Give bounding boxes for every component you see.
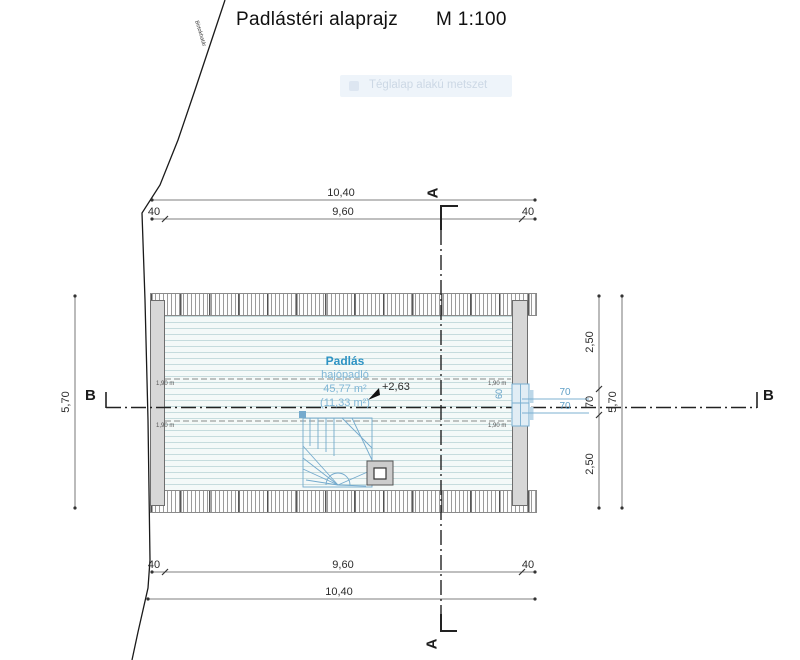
headroom-label-bottom-right: 1,90 m: [488, 423, 506, 429]
room-level: +2,63: [382, 381, 426, 393]
section-tool-label: Téglalap alakú metszet: [369, 79, 487, 91]
dim-bottom-inner: 9,60: [318, 559, 368, 571]
room-area: 45,77 m²: [300, 383, 390, 395]
section-marker-b-right: B: [763, 388, 774, 404]
headroom-label-top-right: 1,90 m: [488, 381, 506, 387]
dim-left-overall: 5,70: [60, 382, 72, 422]
dim-bottom-overall: 10,40: [316, 586, 362, 598]
dim-top-overall: 10,40: [318, 187, 364, 199]
dim-top-left-offset: 40: [144, 206, 164, 218]
dim-bottom-right-offset: 40: [518, 559, 538, 571]
dim-right-upper: 2,50: [584, 322, 596, 362]
dimension-ticks: [162, 216, 602, 575]
dim-top-inner: 9,60: [318, 206, 368, 218]
dim-right-mid: 70: [584, 382, 596, 422]
section-marker-a-bottom: A: [424, 639, 440, 650]
drawing-scale: M 1:100: [436, 9, 507, 31]
floorplan-canvas: Padlástéri alaprajz M 1:100 Birtokhatár …: [0, 0, 800, 660]
room-area-secondary: (11,33 m²): [300, 397, 390, 409]
dim-window-width-bottom: 70: [550, 401, 580, 413]
dim-right-overall: 5,70: [607, 382, 619, 422]
dim-window-width-top: 70: [550, 387, 580, 399]
section-tool-tooltip[interactable]: Téglalap alakú metszet: [340, 75, 512, 97]
section-line-a: [441, 206, 458, 631]
drawing-title: Padlástéri alaprajz: [236, 9, 398, 31]
section-line-b: [106, 392, 757, 408]
headroom-label-top-left: 1,90 m: [156, 381, 174, 387]
gable-window: [512, 384, 534, 426]
headroom-label-bottom-left: 1,90 m: [156, 423, 174, 429]
room-floor-type: hajópadló: [300, 369, 390, 381]
section-marker-b-left: B: [85, 388, 96, 404]
winder-stair: [299, 411, 372, 487]
section-tool-icon: [349, 81, 359, 91]
chimney: [367, 461, 393, 485]
section-marker-a-top: A: [425, 188, 441, 199]
dim-right-lower: 2,50: [584, 444, 596, 484]
linework-layer: [0, 0, 800, 660]
room-name: Padlás: [300, 355, 390, 367]
dim-bottom-left-offset: 40: [144, 559, 164, 571]
dim-top-right-offset: 40: [518, 206, 538, 218]
